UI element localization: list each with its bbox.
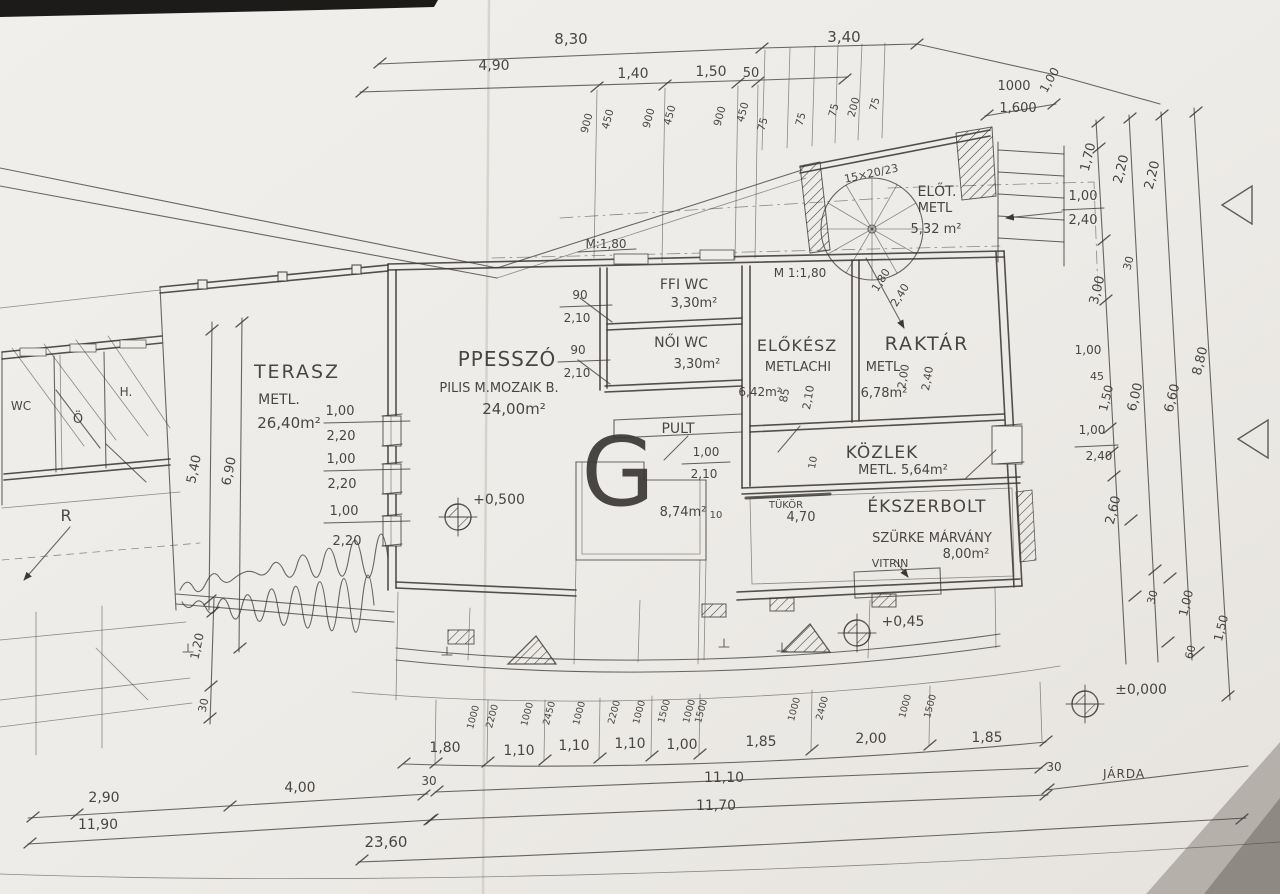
room-label-h: H. [120,385,133,399]
dim-top: 3,40 [827,28,860,46]
room-area-ffi-wc: 3,30m² [671,296,718,311]
room-area-raktar: 6,78m² [861,386,908,401]
level-entrance: +0,45 [882,614,925,630]
dim-right: 1,00 [1069,189,1098,204]
room-label-elot: ELŐT. [917,182,956,200]
plan-canvas: G [0,0,1280,894]
note-scale1: M:1,80 [585,237,626,251]
dim-bottom: 1,10 [614,736,645,752]
dim-bottom: 1,80 [429,740,460,756]
dim-bottom: 1,00 [666,737,697,753]
label-pult: PULT [661,421,695,437]
dim-door: 90 [570,343,585,357]
label-tukor: TÜKÖR [768,498,803,511]
dim-top: 4,90 [478,58,509,74]
dim-door: 2,10 [564,311,591,325]
label-eloter-area: 8,74m² [660,505,707,520]
west-windows [382,414,402,546]
room-mat-presszo: PILIS M.MOZAIK B. [439,381,558,396]
dim-right: 45 [1090,370,1104,383]
room-label-wc: WC [11,399,31,413]
dim-door: 1,00 [693,445,720,459]
dim-topr: 1000 [997,79,1030,94]
room-mat-elokesz: METLACHI [765,360,831,375]
dim-bottom-left: 4,00 [284,780,315,796]
note-scale2: M 1:1,80 [774,266,827,280]
dim-top: 1,40 [617,66,648,82]
dim-door: 90 [572,288,587,302]
dim-door: 2,10 [564,366,591,380]
dim-right: 2,40 [1086,449,1113,463]
window [700,250,734,260]
room-mat-ekszerbolt: SZÜRKE MÁRVÁNY [872,529,992,546]
dim-right: 1,00 [1075,343,1102,357]
room-area-elot: 5,32 m² [911,222,962,237]
dim-bottom: 1,85 [971,730,1002,746]
room-area-presszo: 24,00m² [482,400,546,418]
dim-bottom: 1,10 [558,738,589,754]
room-label-presszo: PPESSZÓ [458,347,557,371]
room-mat-elot: METL [918,201,953,216]
scanned-floor-plan: G [0,0,1280,894]
dim-top: 50 [743,66,760,81]
label-vitrin: VITRIN [872,557,909,570]
room-label-r: R [60,506,71,525]
room-label-terasz: TERASZ [253,361,340,383]
dim-bottom-left: 11,90 [78,817,118,833]
dim-west: 1,00 [326,404,355,419]
label-jarda: JÁRDA [1102,766,1145,781]
room-label-noi-wc: NŐI WC [654,333,708,351]
room-mat-terasz: METL. [258,392,300,408]
dim-top: 8,30 [554,30,587,48]
dim-bottom: 30 [1046,760,1061,774]
dim-bottom: 1,85 [745,734,776,750]
room-label-raktar: RAKTÁR [885,332,970,355]
dim-bottom: 1,10 [503,743,534,759]
dim-right: 2,40 [1069,213,1098,228]
level-terasz: +0,500 [473,492,525,508]
dim-bottom-left: 2,90 [88,790,119,806]
room-label-kozlek: KÖZLEK [846,441,919,463]
room-label-elokesz: ELŐKÉSZ [757,335,837,355]
room-area-elokesz: 6,42m² [738,385,781,399]
dim-west: 1,00 [330,504,359,519]
dim-west: 1,00 [327,452,356,467]
room-area-noi-wc: 3,30m² [674,357,721,372]
room-area-terasz: 26,40m² [257,414,321,432]
east-door-gap [992,426,1022,464]
window [614,254,648,264]
room-area-ekszerbolt: 8,00m² [943,547,990,562]
dim-bottom: 11,70 [696,798,736,814]
dim-door: 2,10 [691,467,718,481]
dim-west: 2,20 [327,429,356,444]
dim-inner: 4,70 [787,510,816,525]
room-mat-kozlek: METL. 5,64m² [858,463,948,478]
room-mat-raktar: METL [866,360,901,375]
dim-west: 2,20 [328,477,357,492]
dim-right: 1,00 [1079,423,1106,437]
dim-bottom: 30 [421,774,436,788]
level-street: ±0,000 [1115,682,1167,698]
dim-bottom: 11,10 [704,770,744,786]
dim-inner: 10 [807,455,820,469]
dim-top: 1,50 [695,64,726,80]
dim-bottom: 2,00 [855,731,886,747]
room-label-ekszerbolt: ÉKSZERBOLT [867,495,986,517]
room-label-ffi-wc: FFI WC [660,277,709,293]
dim-topr: 1,600 [999,101,1036,116]
dim-west: 2,20 [333,534,362,549]
room-label-o: Ö [73,410,83,427]
dim-inner: 10 [710,510,723,521]
dim-bottom: 23,60 [365,833,408,851]
